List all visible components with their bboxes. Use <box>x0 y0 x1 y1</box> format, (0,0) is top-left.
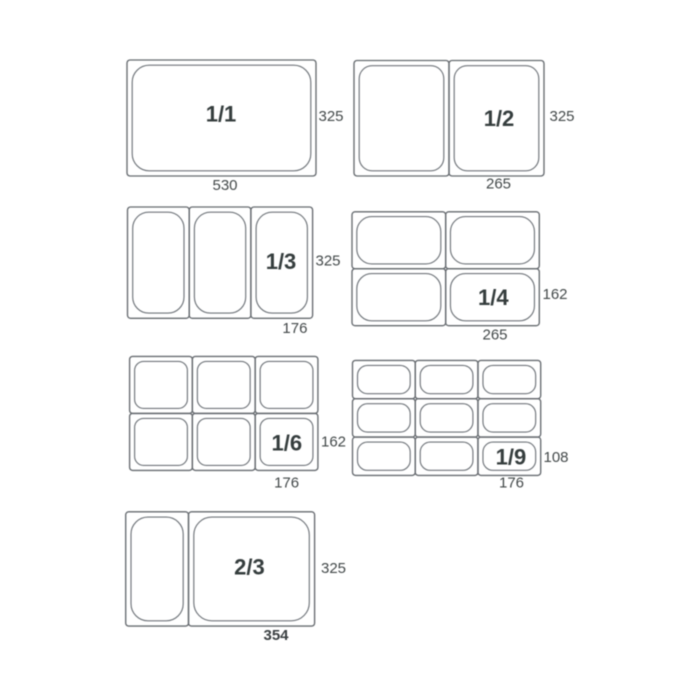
svg-text:1/2: 1/2 <box>484 106 515 131</box>
svg-text:176: 176 <box>274 474 299 491</box>
svg-text:530: 530 <box>212 177 237 194</box>
svg-text:162: 162 <box>543 286 568 303</box>
svg-text:265: 265 <box>486 176 511 193</box>
svg-text:1/6: 1/6 <box>272 430 303 455</box>
svg-text:1/9: 1/9 <box>496 445 527 470</box>
svg-text:176: 176 <box>499 474 524 491</box>
svg-text:1/1: 1/1 <box>206 102 237 127</box>
svg-text:1/3: 1/3 <box>266 249 297 274</box>
svg-text:354: 354 <box>263 627 289 644</box>
svg-text:108: 108 <box>544 449 569 466</box>
svg-text:162: 162 <box>321 434 346 451</box>
svg-text:325: 325 <box>321 560 346 577</box>
svg-text:265: 265 <box>482 327 507 344</box>
svg-text:2/3: 2/3 <box>234 555 265 580</box>
svg-text:325: 325 <box>319 108 344 125</box>
svg-text:176: 176 <box>282 320 307 337</box>
svg-text:1/4: 1/4 <box>478 285 509 310</box>
svg-text:325: 325 <box>550 108 575 125</box>
svg-text:325: 325 <box>316 252 341 269</box>
